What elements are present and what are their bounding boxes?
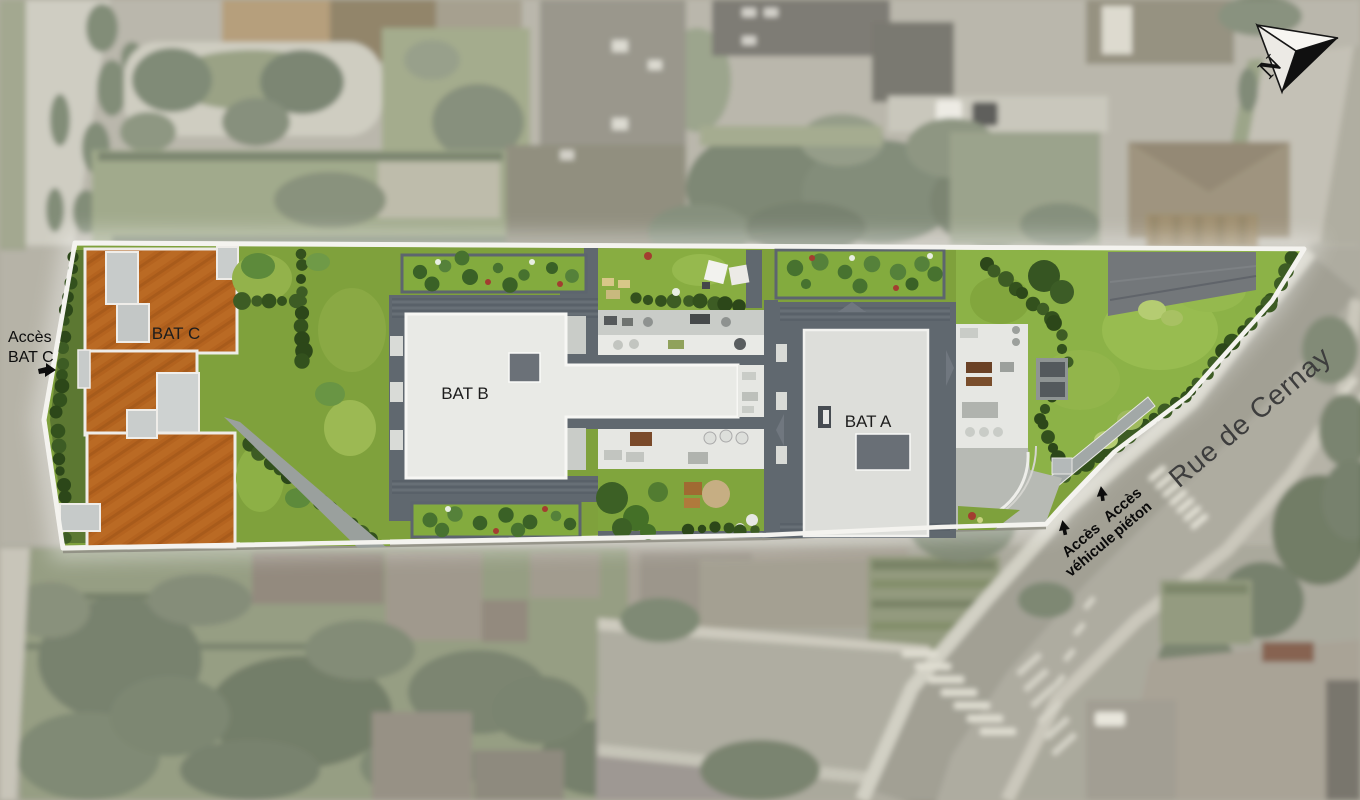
svg-text:BAT C: BAT C [8,349,54,366]
svg-text:Accès: Accès [8,329,52,346]
svg-text:BAT A: BAT A [845,412,892,431]
svg-text:BAT B: BAT B [441,384,489,403]
svg-text:BAT C: BAT C [152,324,201,343]
